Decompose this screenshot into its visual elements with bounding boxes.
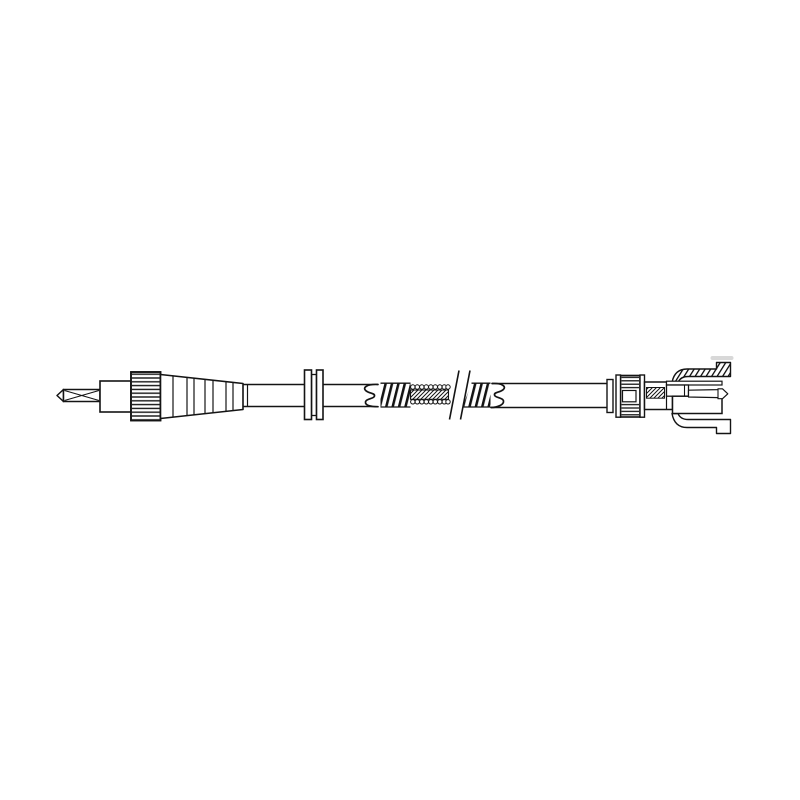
casing-boot-left: [365, 384, 378, 406]
inner-core: [411, 385, 451, 404]
outer-casing-right: [491, 380, 613, 413]
stepped-ferrule: [161, 375, 244, 419]
spring-clip-lower: [672, 414, 731, 434]
square-drive-tip: [57, 390, 100, 402]
knurled-coupling-nut: [131, 372, 161, 421]
tip-collar: [100, 381, 131, 412]
bulkhead-grommet: [305, 370, 324, 420]
spring-clip-upper: [672, 363, 731, 383]
casing-boot-right: [491, 383, 504, 407]
speedometer-cable-drawing: [0, 0, 800, 800]
helical-armour-left: [381, 383, 411, 407]
drive-pin: [689, 389, 728, 399]
drawing-canvas: [0, 0, 800, 800]
print-artifact: [711, 356, 734, 360]
ribbed-retainer-nut: [616, 375, 645, 417]
